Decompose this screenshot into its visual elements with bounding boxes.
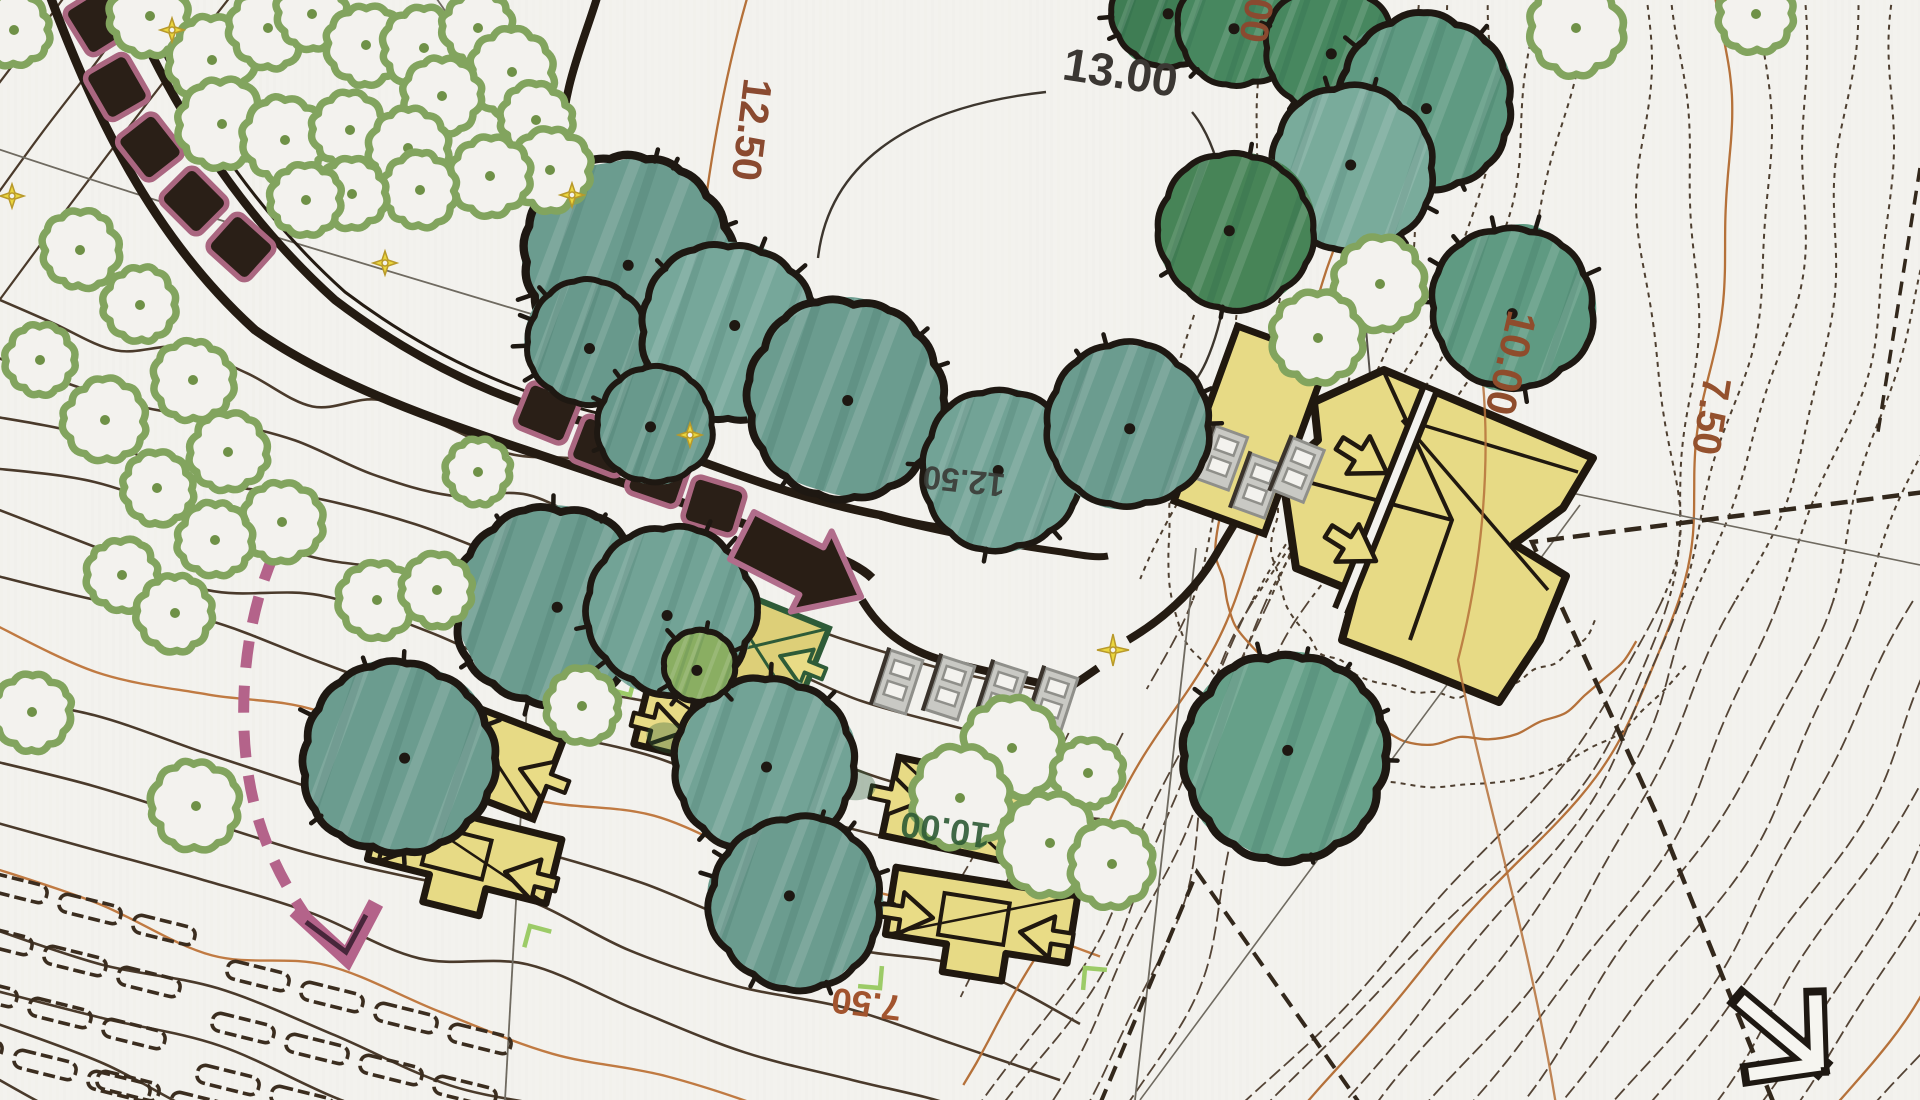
svg-text:00: 00 <box>1230 0 1281 46</box>
svg-text:7.50: 7.50 <box>829 980 904 1029</box>
